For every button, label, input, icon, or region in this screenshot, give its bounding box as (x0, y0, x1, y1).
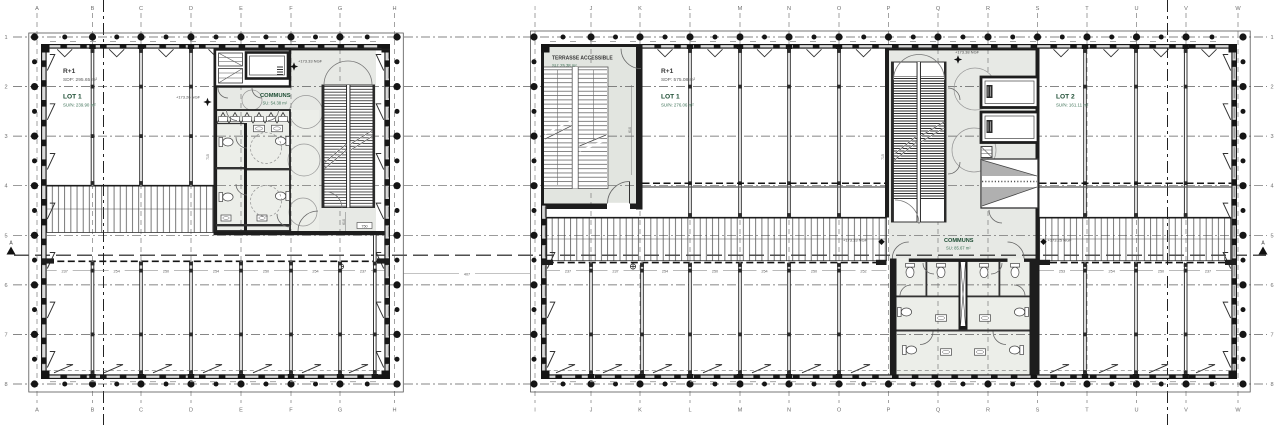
svg-text:1: 1 (1270, 35, 1273, 41)
svg-text:+173.26 NGF: +173.26 NGF (176, 95, 201, 100)
svg-text:237: 237 (1205, 269, 1211, 273)
svg-text:D: D (189, 6, 193, 12)
svg-text:H: H (392, 6, 396, 12)
svg-text:J: J (590, 6, 593, 12)
svg-text:Q: Q (936, 408, 941, 414)
svg-text:8: 8 (1270, 382, 1273, 388)
svg-text:5: 5 (1270, 233, 1273, 239)
svg-text:G: G (338, 408, 342, 414)
svg-text:5: 5 (4, 233, 7, 239)
svg-text:E: E (239, 6, 243, 12)
svg-text:SU: 85.67 m²: SU: 85.67 m² (946, 246, 971, 251)
svg-text:237: 237 (360, 269, 366, 273)
svg-text:M: M (738, 408, 743, 414)
svg-text:+173.33 NGF: +173.33 NGF (298, 59, 323, 64)
svg-text:U: U (1134, 408, 1138, 414)
svg-text:V: V (1184, 408, 1188, 414)
svg-text:8: 8 (4, 382, 7, 388)
svg-text:7: 7 (1270, 332, 1273, 338)
svg-text:T: T (1085, 408, 1089, 414)
svg-text:7: 7 (4, 332, 7, 338)
svg-text:C: C (139, 6, 143, 12)
svg-text:L: L (688, 6, 691, 12)
svg-text:SDP: 575.08 m²: SDP: 575.08 m² (661, 77, 696, 83)
svg-text:M: M (738, 6, 743, 12)
svg-text:B: B (91, 6, 95, 12)
svg-text:3: 3 (1270, 134, 1273, 140)
svg-text:610: 610 (342, 219, 346, 225)
svg-text:SU/N: 276.06 m²: SU/N: 276.06 m² (661, 103, 694, 108)
svg-text:COMMUNS: COMMUNS (260, 93, 291, 99)
svg-text:LOT 1: LOT 1 (661, 94, 680, 101)
svg-text:H: H (392, 408, 396, 414)
svg-text:L: L (688, 408, 691, 414)
svg-text:O: O (837, 408, 842, 414)
svg-text:250: 250 (163, 269, 169, 273)
svg-text:SU/N: 161.11 m²: SU/N: 161.11 m² (1056, 103, 1089, 108)
svg-text:S: S (1036, 6, 1040, 12)
svg-text:P: P (887, 408, 891, 414)
svg-text:715: 715 (881, 154, 885, 160)
svg-text:+173.38 NGF: +173.38 NGF (955, 50, 980, 55)
svg-text:N: N (787, 408, 791, 414)
svg-text:P: P (887, 6, 891, 12)
svg-text:R+1: R+1 (63, 68, 76, 75)
svg-text:R: R (986, 6, 990, 12)
svg-text:4: 4 (4, 184, 7, 190)
svg-text:K: K (638, 6, 642, 12)
svg-text:2: 2 (1270, 85, 1273, 91)
svg-text:U: U (1134, 6, 1138, 12)
svg-text:250: 250 (712, 269, 718, 273)
svg-text:F: F (289, 6, 293, 12)
svg-text:715: 715 (206, 154, 210, 160)
svg-text:C: C (139, 408, 143, 414)
svg-text:B: B (91, 408, 95, 414)
svg-text:SU/N: 239.90 m²: SU/N: 239.90 m² (63, 103, 96, 108)
svg-text:252: 252 (860, 269, 866, 273)
svg-text:254: 254 (662, 269, 668, 273)
svg-text:R+1: R+1 (661, 68, 674, 75)
svg-text:LOT 2: LOT 2 (1056, 94, 1075, 101)
svg-text:253: 253 (1059, 269, 1065, 273)
svg-text:1: 1 (4, 35, 7, 41)
svg-text:2: 2 (4, 85, 7, 91)
svg-text:D: D (189, 408, 193, 414)
svg-text:610: 610 (628, 127, 632, 133)
svg-text:237: 237 (612, 269, 618, 273)
svg-text:254: 254 (312, 269, 318, 273)
svg-text:R: R (986, 408, 990, 414)
svg-text:COMMUNS: COMMUNS (944, 238, 974, 244)
svg-text:A: A (35, 6, 39, 12)
svg-text:K: K (638, 408, 642, 414)
svg-text:250: 250 (1158, 269, 1164, 273)
svg-text:4: 4 (1270, 184, 1273, 190)
svg-text:250: 250 (811, 269, 817, 273)
svg-text:254: 254 (761, 269, 767, 273)
svg-text:237: 237 (565, 269, 571, 273)
svg-text:SDP: 295.65 m²: SDP: 295.65 m² (63, 77, 98, 83)
svg-text:E: E (239, 408, 243, 414)
svg-text:W: W (1235, 408, 1241, 414)
svg-text:407: 407 (464, 272, 470, 276)
svg-text:750: 750 (361, 224, 367, 228)
svg-text:3: 3 (4, 134, 7, 140)
svg-text:S: S (1036, 408, 1040, 414)
svg-text:6: 6 (4, 283, 7, 289)
svg-text:V: V (1184, 6, 1188, 12)
svg-text:237: 237 (62, 269, 68, 273)
svg-text:6: 6 (1270, 283, 1273, 289)
svg-text:J: J (590, 408, 593, 414)
svg-text:LOT 1: LOT 1 (63, 94, 82, 101)
svg-text:254: 254 (114, 269, 120, 273)
svg-text:G: G (338, 6, 342, 12)
svg-text:W: W (1235, 6, 1241, 12)
svg-text:254: 254 (213, 269, 219, 273)
svg-text:T: T (1085, 6, 1089, 12)
svg-text:SU: 54.38 m²: SU: 54.38 m² (263, 101, 288, 106)
svg-text:+173.33 NGF: +173.33 NGF (843, 238, 868, 243)
svg-text:+173.25 NGF: +173.25 NGF (1048, 238, 1073, 243)
svg-text:Q: Q (936, 6, 941, 12)
svg-text:F: F (289, 408, 293, 414)
svg-text:A: A (35, 408, 39, 414)
svg-text:N: N (787, 6, 791, 12)
svg-text:TERRASSE ACCESSIBLE: TERRASSE ACCESSIBLE (552, 56, 613, 62)
svg-text:254: 254 (1109, 269, 1115, 273)
svg-text:O: O (837, 6, 842, 12)
svg-text:250: 250 (263, 269, 269, 273)
